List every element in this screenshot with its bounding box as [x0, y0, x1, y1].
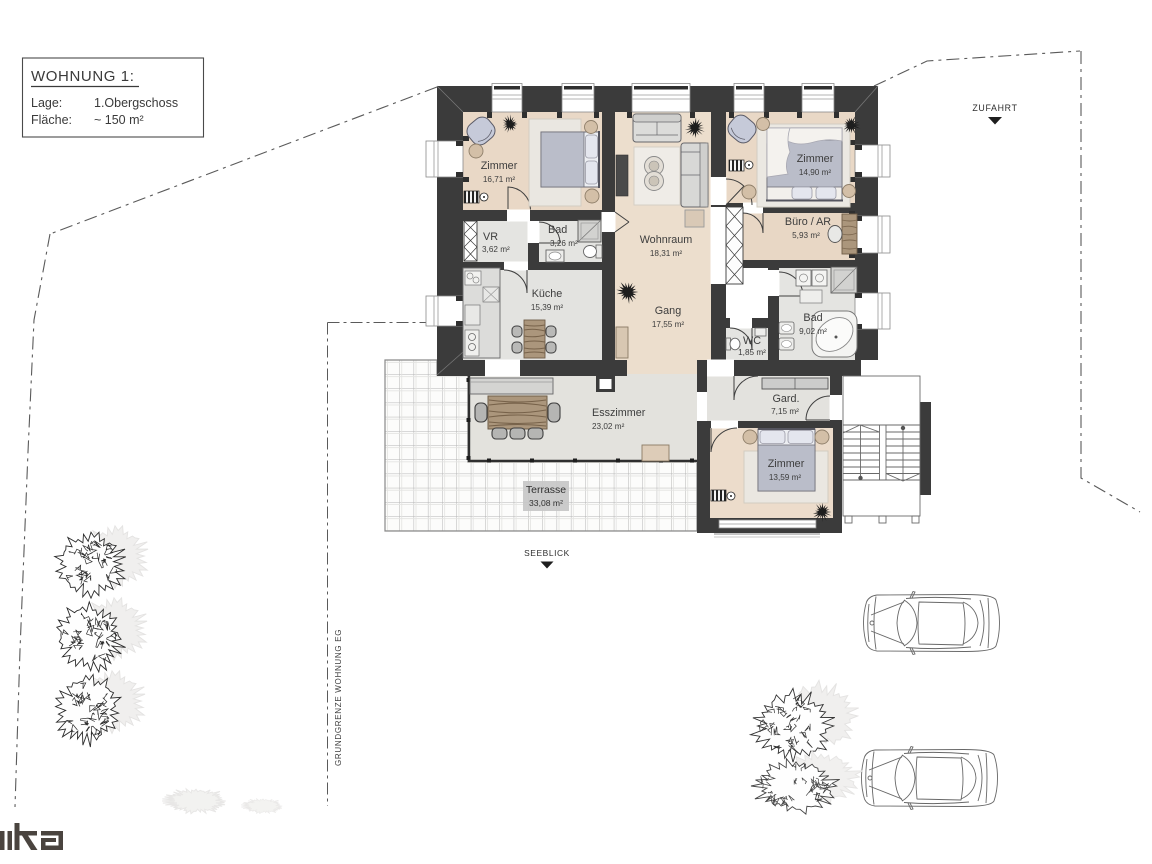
svg-text:Gang: Gang [655, 305, 681, 317]
svg-text:VR: VR [483, 231, 498, 243]
svg-text:Zimmer: Zimmer [481, 160, 518, 172]
svg-text:SEEBLICK: SEEBLICK [524, 548, 570, 558]
svg-text:WC: WC [743, 335, 761, 347]
svg-text:Zimmer: Zimmer [797, 153, 834, 165]
svg-text:Bad: Bad [803, 312, 822, 324]
svg-text:1,85 m²: 1,85 m² [738, 348, 766, 357]
svg-text:33,08 m²: 33,08 m² [529, 498, 563, 508]
svg-text:13,59 m²: 13,59 m² [769, 473, 802, 482]
svg-text:Terrasse: Terrasse [526, 484, 566, 496]
svg-text:9,02 m²: 9,02 m² [799, 327, 827, 336]
svg-text:~ 150 m²: ~ 150 m² [94, 113, 144, 127]
svg-text:Fläche:: Fläche: [31, 113, 72, 127]
svg-text:1.Obergschoss: 1.Obergschoss [94, 96, 178, 110]
svg-text:Küche: Küche [532, 288, 563, 300]
svg-text:WOHNUNG 1:: WOHNUNG 1: [31, 68, 135, 85]
svg-text:15,39 m²: 15,39 m² [531, 303, 564, 312]
svg-text:16,71 m²: 16,71 m² [483, 175, 516, 184]
svg-text:Lage:: Lage: [31, 96, 62, 110]
svg-text:7,15 m²: 7,15 m² [771, 407, 799, 416]
svg-text:17,55 m²: 17,55 m² [652, 320, 685, 329]
svg-text:Bad: Bad [548, 224, 567, 236]
svg-text:Büro / AR: Büro / AR [785, 216, 831, 228]
svg-text:Wohnraum: Wohnraum [640, 234, 693, 246]
svg-text:GRUNDGRENZE WOHNUNG EG: GRUNDGRENZE WOHNUNG EG [334, 629, 343, 766]
svg-text:5,93 m²: 5,93 m² [792, 231, 820, 240]
svg-text:ZUFAHRT: ZUFAHRT [972, 103, 1017, 113]
svg-text:18,31 m²: 18,31 m² [650, 249, 683, 258]
svg-text:Esszimmer: Esszimmer [592, 407, 646, 419]
svg-text:Zimmer: Zimmer [768, 458, 805, 470]
svg-text:3,62 m²: 3,62 m² [482, 245, 510, 254]
svg-text:23,02 m²: 23,02 m² [592, 422, 625, 431]
svg-text:14,90 m²: 14,90 m² [799, 168, 832, 177]
svg-text:Gard.: Gard. [772, 393, 799, 405]
svg-text:3,26 m²: 3,26 m² [550, 239, 578, 248]
